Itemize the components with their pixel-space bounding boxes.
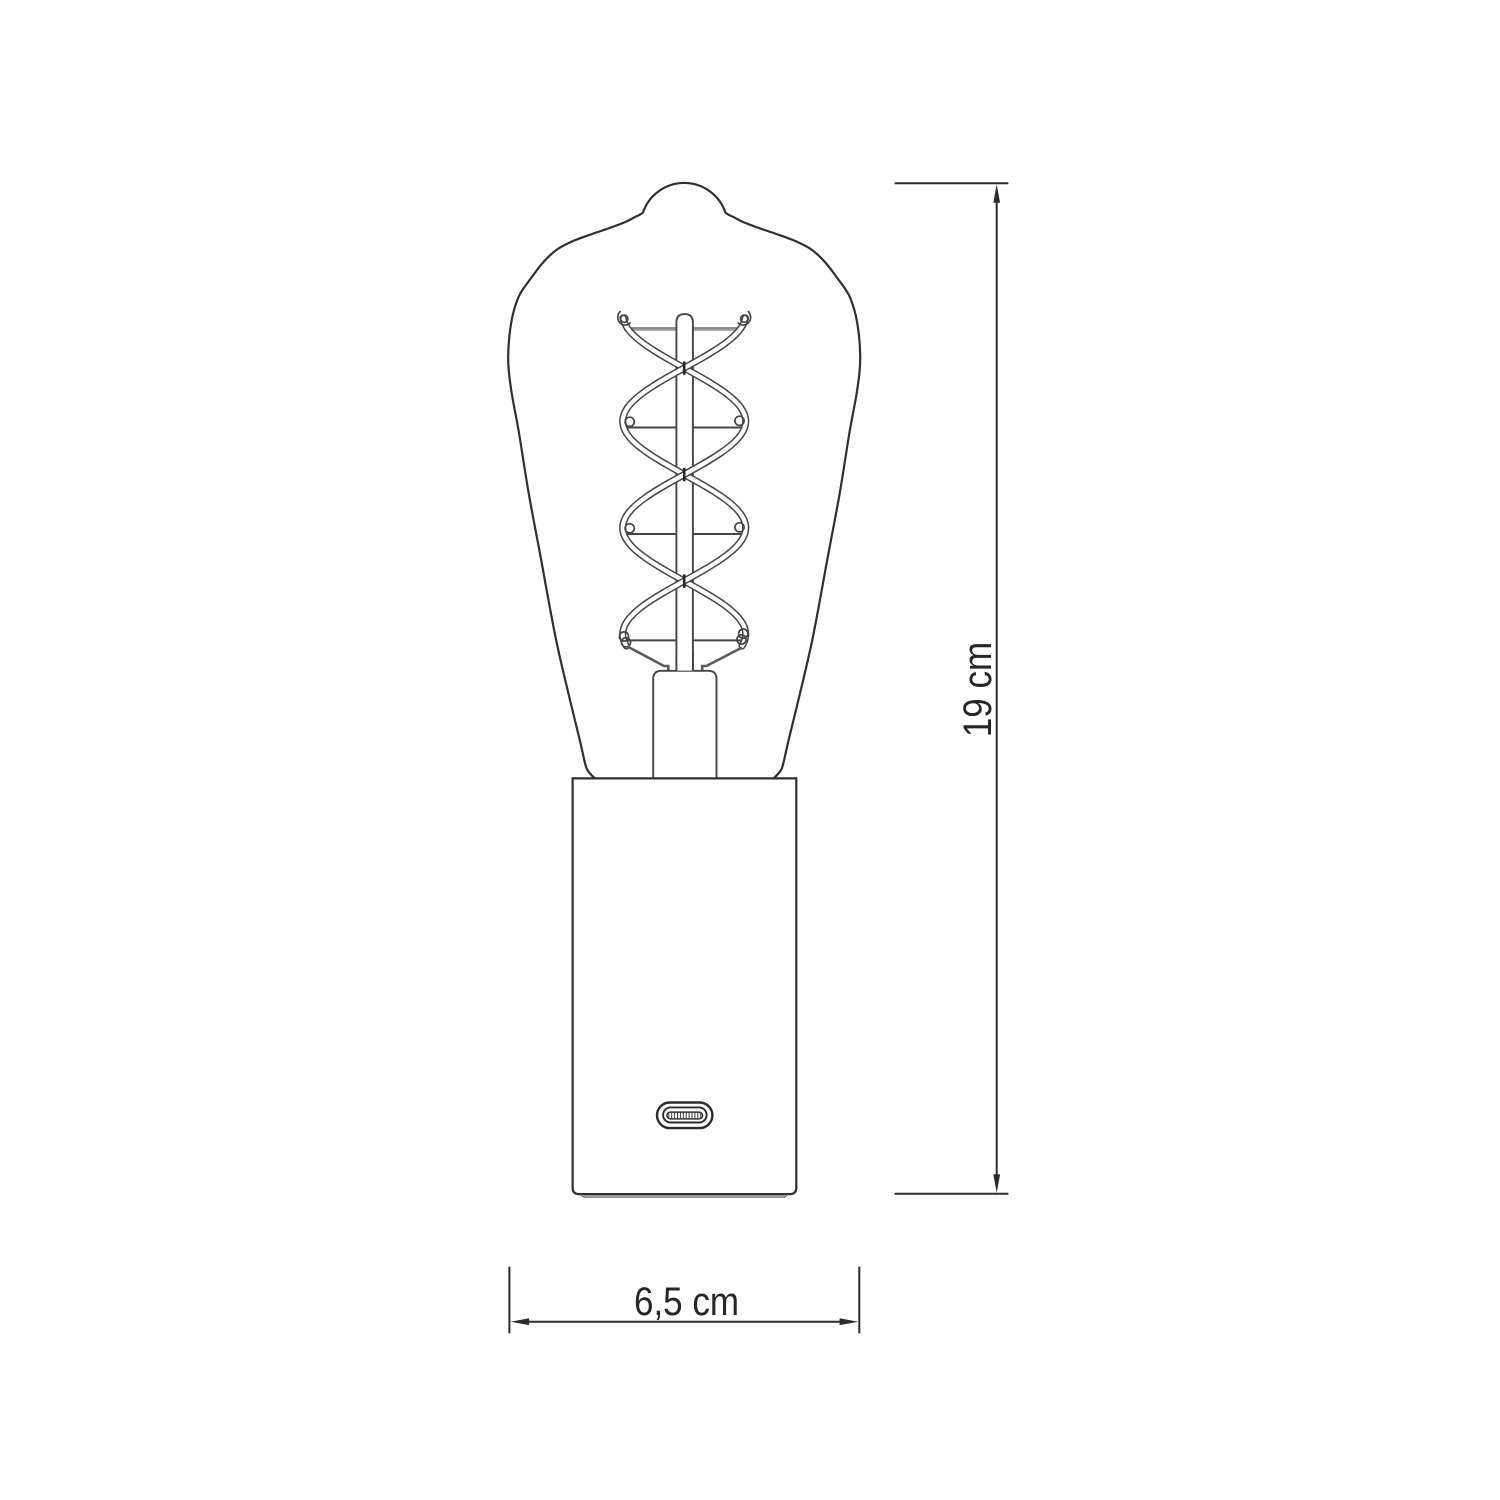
svg-text:6,5 cm: 6,5 cm (634, 1279, 739, 1324)
svg-text:19 cm: 19 cm (955, 642, 1000, 737)
